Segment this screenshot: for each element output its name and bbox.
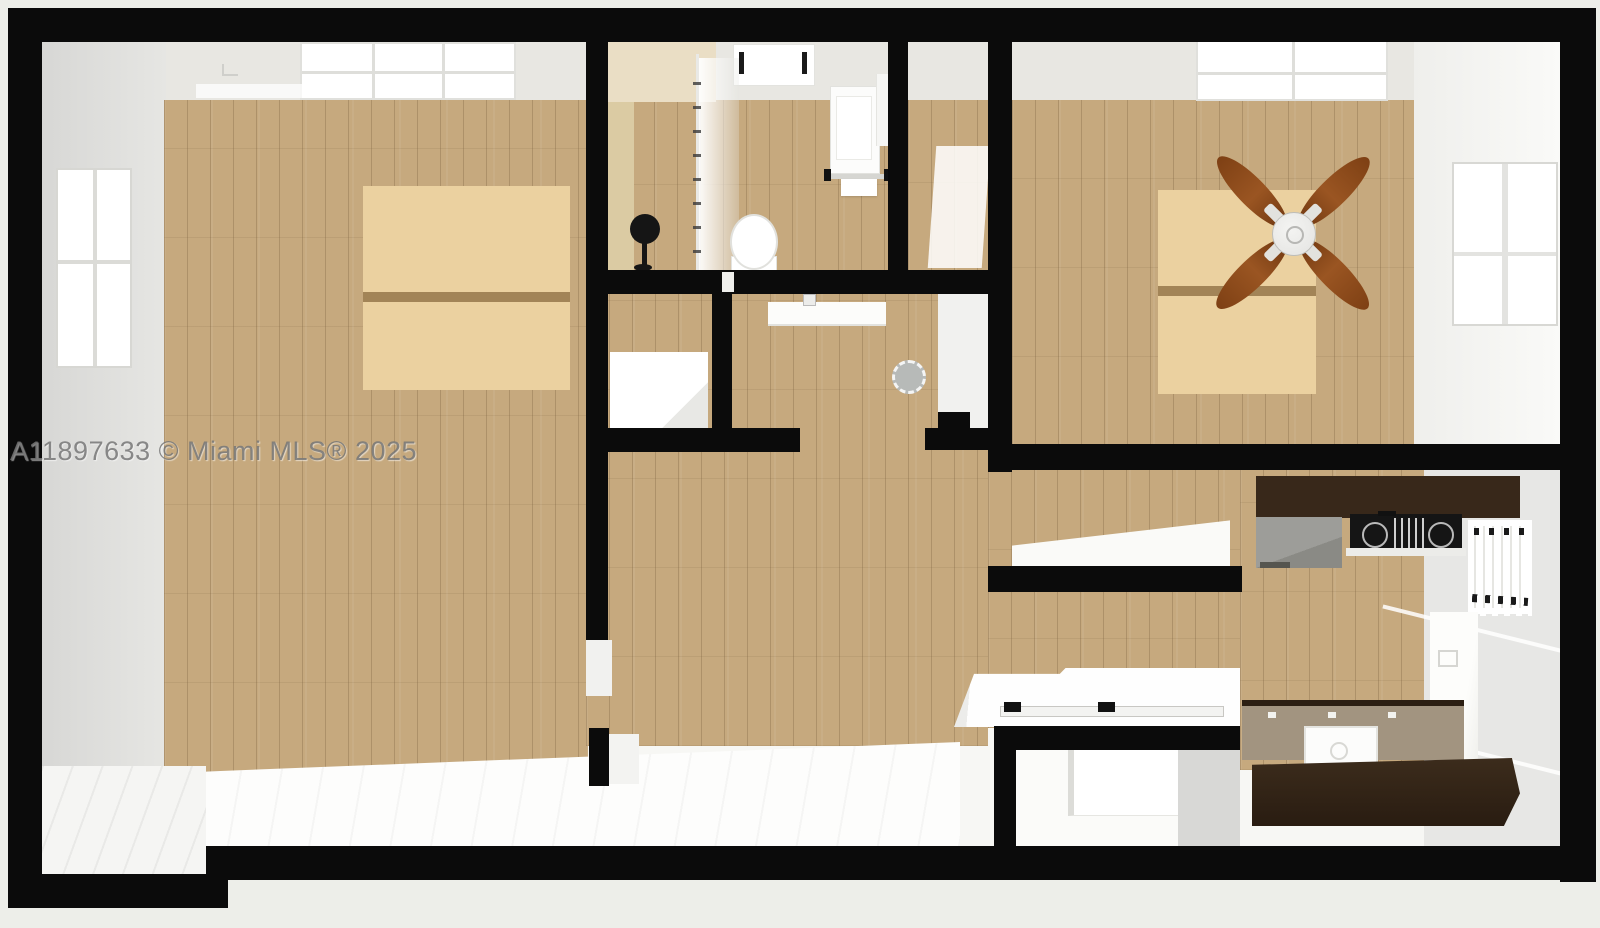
wall-segment [586,270,988,294]
outer-wall-top [8,8,1596,42]
living-patch-divider [363,292,570,302]
wall-segment [994,726,1240,750]
kitchen-island [1252,758,1520,826]
wall-step-segment [938,412,970,430]
left-window [56,168,132,368]
wall-junction-face [722,272,734,292]
tray-handle-icon [1098,702,1115,712]
skylight-mullion [1198,72,1386,75]
cooktop-front-frame [1346,548,1466,556]
fan-hub-detail [1286,226,1304,244]
cooktop-knob-icon [1378,511,1396,516]
shower-tan-wall-strip [608,102,634,272]
wall-segment [988,40,1012,472]
wall-segment [994,726,1016,850]
nook-right-wall-face [1178,748,1240,846]
wall-segment [988,566,1242,592]
skylight-mullion [302,71,514,74]
sink-counter [768,302,886,326]
wall-segment [988,444,1562,470]
living-light-patch-upper [363,186,570,292]
outer-wall-bottom [206,846,1596,880]
wall-end-face [586,640,612,696]
towel-bar-cap [824,169,831,181]
window-mullion [93,170,97,366]
curtain-rings [693,82,701,270]
outer-wall-bottom-left [8,874,228,908]
wall-segment [589,728,609,786]
closet-light-patch [928,146,991,268]
living-light-patch-lower [363,302,570,390]
storage-box [610,352,708,432]
towel [841,179,877,196]
laundry-counter [954,668,1240,727]
skylight-clip-icon [739,52,744,74]
faucet-icon [803,294,816,306]
watermark: A11897633 © Miami MLS® 2025 [10,436,417,467]
vanity-sink-basin [836,96,872,160]
washer [1068,742,1181,816]
skylight-clip-icon [802,52,807,74]
wall-hook-icon [222,64,238,76]
skylight-mullion [1292,42,1295,99]
door-handle-icon [1438,650,1458,667]
cabinet-handle-icons [1268,712,1448,718]
window-mullion [1502,164,1508,324]
burner-icon [1362,522,1388,548]
wall-segment [888,40,908,272]
dishwasher [1256,517,1342,568]
floor-lamp-stem [642,242,647,266]
outer-wall-right [1560,8,1596,882]
window-mullion [1454,252,1556,256]
wall-segment [586,40,608,640]
floor-plan: A11897633 © Miami MLS® 2025 [0,0,1600,928]
bedroom-skylight [1196,40,1388,101]
bedroom-window [1452,162,1558,326]
round-stool [892,360,926,394]
toilet-bowl [730,214,778,270]
burner-icon [1428,522,1454,548]
tray-handle-icon [1004,702,1021,712]
wall-segment [586,428,800,452]
window-mullion [58,260,130,264]
hall-floor [586,272,988,746]
sink-drain-icon [1330,742,1348,760]
living-skylight [300,42,516,100]
window-latch-icons [1474,528,1526,535]
floor-lamp-icon [630,214,660,244]
living-skylight-glow [196,84,306,98]
wall-end-face [609,734,639,784]
cooktop-grill-icon [1394,518,1426,548]
wall-step-segment [925,428,988,450]
dishwasher-handle [1260,562,1290,568]
entry-tile-floor [42,766,206,888]
